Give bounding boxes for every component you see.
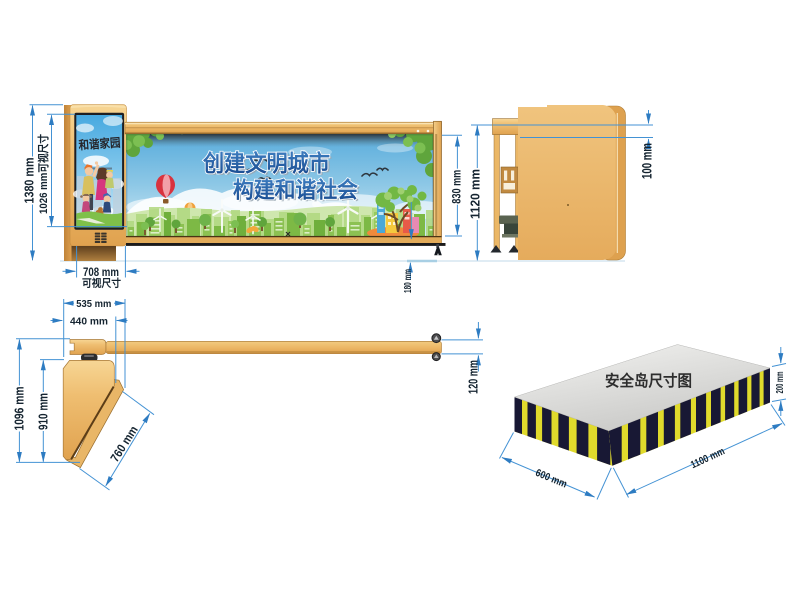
svg-text:1096 mm: 1096 mm (12, 387, 27, 431)
svg-text:535 mm: 535 mm (76, 298, 111, 310)
svg-text:1100 mm: 1100 mm (689, 445, 727, 471)
svg-text:440 mm: 440 mm (70, 315, 108, 327)
svg-text:1026 mm可视尺寸: 1026 mm可视尺寸 (36, 134, 50, 214)
svg-text:和谐家园: 和谐家园 (77, 135, 121, 153)
svg-text:100 mm: 100 mm (639, 143, 654, 179)
svg-text:可视尺寸: 可视尺寸 (82, 277, 121, 290)
svg-text:600 mm: 600 mm (534, 467, 569, 491)
svg-text:安全岛尺寸图: 安全岛尺寸图 (605, 371, 692, 390)
svg-text:构建和谐社会: 构建和谐社会 (233, 178, 358, 203)
svg-text:830 mm: 830 mm (450, 170, 464, 204)
svg-text:760 mm: 760 mm (107, 423, 140, 464)
svg-text:200 mm: 200 mm (774, 372, 786, 394)
svg-text:910 mm: 910 mm (35, 393, 50, 430)
svg-text:120 mm: 120 mm (466, 360, 480, 394)
svg-text:180 mm: 180 mm (403, 269, 414, 293)
svg-text:1380 mm: 1380 mm (23, 158, 37, 204)
svg-text:创建文明城市: 创建文明城市 (202, 150, 330, 176)
svg-text:1120 mm: 1120 mm (468, 169, 483, 219)
